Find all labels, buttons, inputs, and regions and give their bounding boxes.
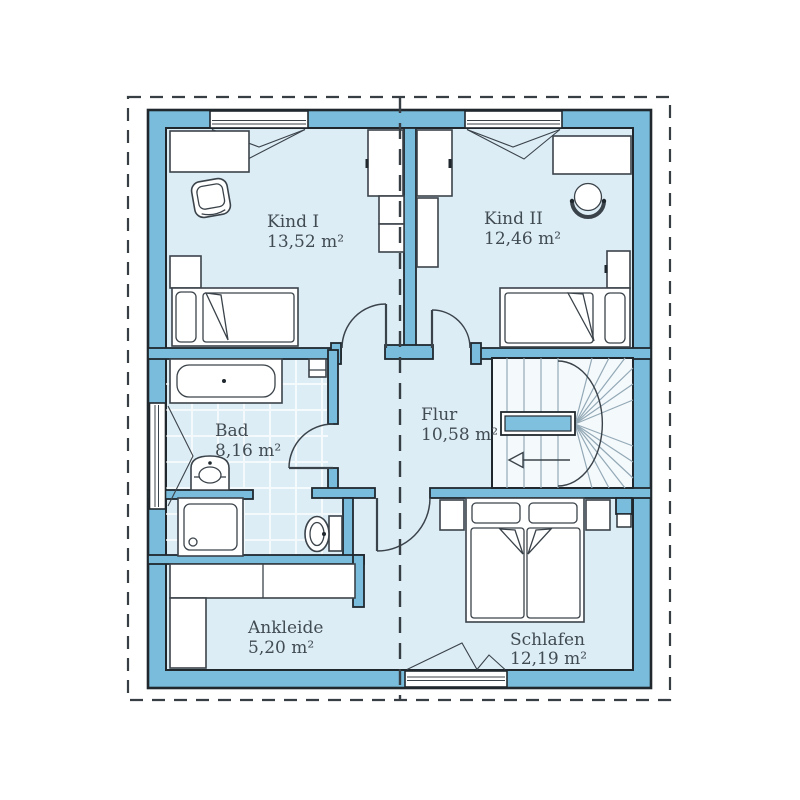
closet-icon (417, 130, 452, 196)
wall-kind1-south (148, 348, 341, 359)
single-bed-icon (500, 288, 630, 347)
wardrobe-column-icon (170, 598, 206, 668)
pillow-icon (605, 293, 625, 343)
room-label-ankleide: Ankleide (247, 618, 323, 638)
double-bed-icon (466, 498, 584, 622)
closet-handle-icon (449, 159, 452, 168)
cabinet-icon (417, 198, 438, 267)
party-wall (404, 128, 416, 350)
room-label-kind2: Kind II (484, 209, 543, 229)
furniture-schlafen (440, 498, 610, 622)
wall-schlafen-north (430, 488, 651, 498)
wall-wc-north (312, 488, 375, 498)
closet-icon (368, 130, 403, 196)
shower-icon (178, 498, 243, 556)
room-area-bad: 8,16 m² (215, 441, 281, 461)
room-area-schlafen: 12,19 m² (510, 649, 587, 669)
wall-bad-east-stub (328, 468, 338, 490)
room-area-kind1: 13,52 m² (267, 232, 344, 252)
floor-plan-drawing: Kind I 13,52 m² Kind II 12,46 m² Bad 8,1… (0, 0, 800, 800)
pillow-icon (472, 503, 520, 523)
room-label-bad: Bad (215, 421, 249, 441)
closet-handle-icon (366, 159, 369, 168)
nightstand-icon (607, 251, 630, 288)
room-label-kind1: Kind I (267, 212, 319, 232)
room-area-kind2: 12,46 m² (484, 229, 561, 249)
single-bed-icon (172, 288, 298, 346)
toilet-icon (305, 516, 342, 552)
room-area-ankleide: 5,20 m² (248, 638, 314, 658)
nightstand-icon (586, 500, 610, 530)
party-wall-cap (385, 345, 433, 359)
bathtub-icon (170, 359, 282, 403)
stair-divider-inner (505, 416, 571, 431)
staircase (492, 358, 633, 488)
desk-icon (553, 136, 631, 174)
armchair-icon (190, 177, 232, 219)
sink-icon (191, 456, 229, 490)
side-table-icon (170, 256, 201, 288)
pillow-icon (529, 503, 577, 523)
chimney-block (616, 498, 632, 514)
wall-end-cap-right (471, 343, 481, 364)
chimney-niche (617, 514, 631, 527)
room-label-flur: Flur (421, 405, 458, 425)
room-label-schlafen: Schlafen (510, 630, 585, 650)
nightstand-handle-icon (605, 265, 608, 273)
wall-bad-east-upper (328, 350, 338, 424)
shelf-icon (309, 359, 326, 377)
wardrobe-icon (170, 131, 249, 172)
nightstand-icon (440, 500, 464, 530)
floor-plan-page: Kind I 13,52 m² Kind II 12,46 m² Bad 8,1… (0, 0, 800, 800)
room-area-flur: 10,58 m² (421, 425, 498, 445)
wall-wc-east (343, 498, 353, 557)
pillow-icon (176, 292, 196, 342)
